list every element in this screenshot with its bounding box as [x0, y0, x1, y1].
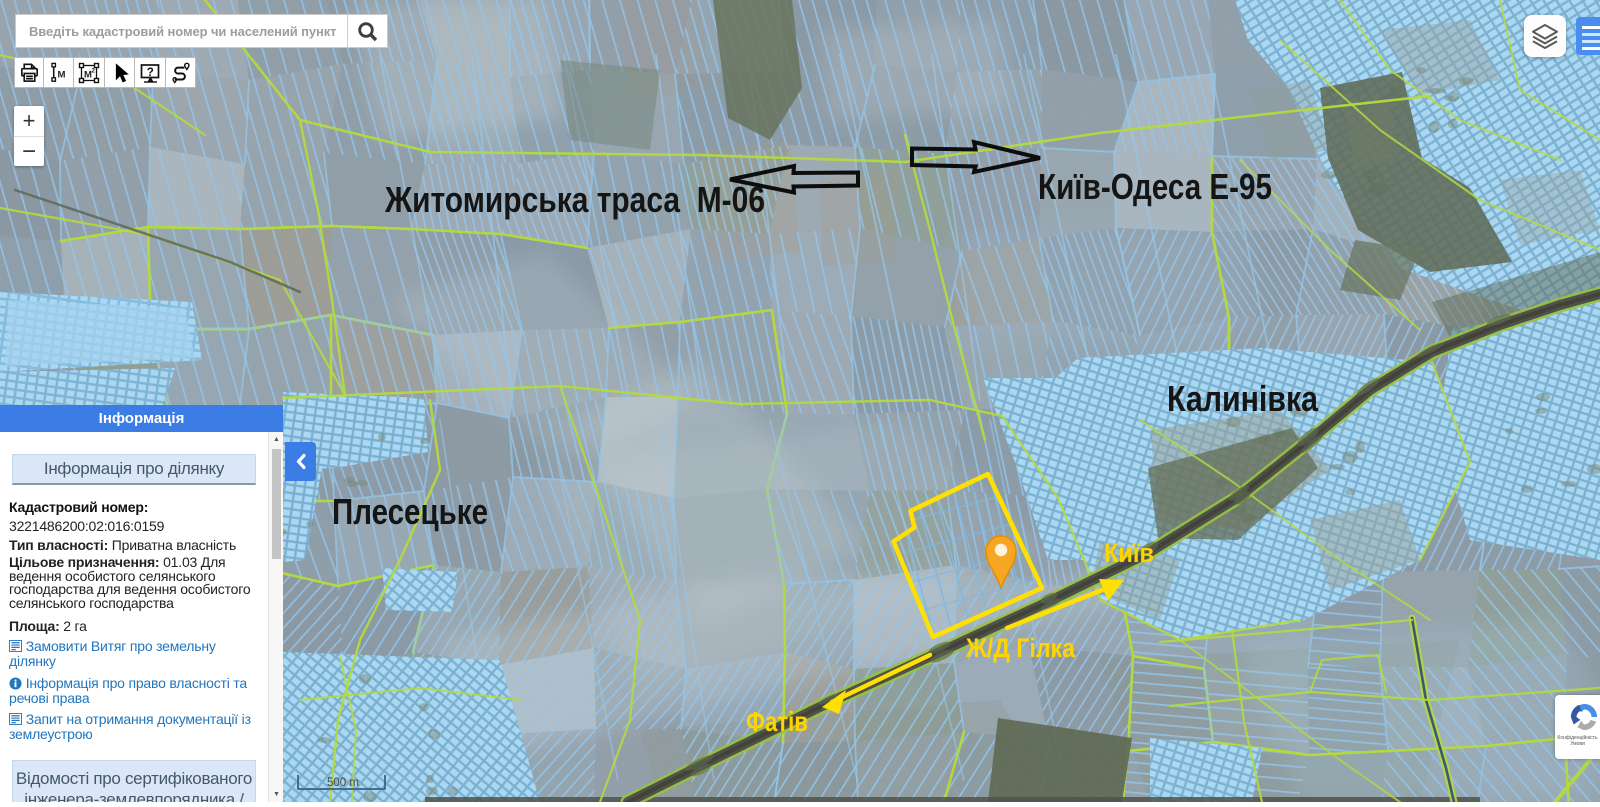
svg-text:Київ-Одеса Е-95: Київ-Одеса Е-95	[1038, 166, 1272, 207]
svg-text:М: М	[58, 69, 66, 80]
svg-text:500 m: 500 m	[327, 777, 359, 789]
svg-text:Ж/Д Гілка: Ж/Д Гілка	[965, 633, 1076, 663]
svg-text:Житомирська траса М-06: Житомирська траса М-06	[384, 179, 765, 220]
svg-text:Калинівка: Калинівка	[1167, 378, 1319, 419]
svg-text:?: ?	[147, 66, 154, 78]
svg-text:Плесецьке: Плесецьке	[332, 491, 488, 532]
svg-text:2: 2	[92, 68, 96, 74]
svg-text:Київ: Київ	[1104, 538, 1154, 568]
svg-text:Фатів: Фатів	[746, 706, 808, 737]
